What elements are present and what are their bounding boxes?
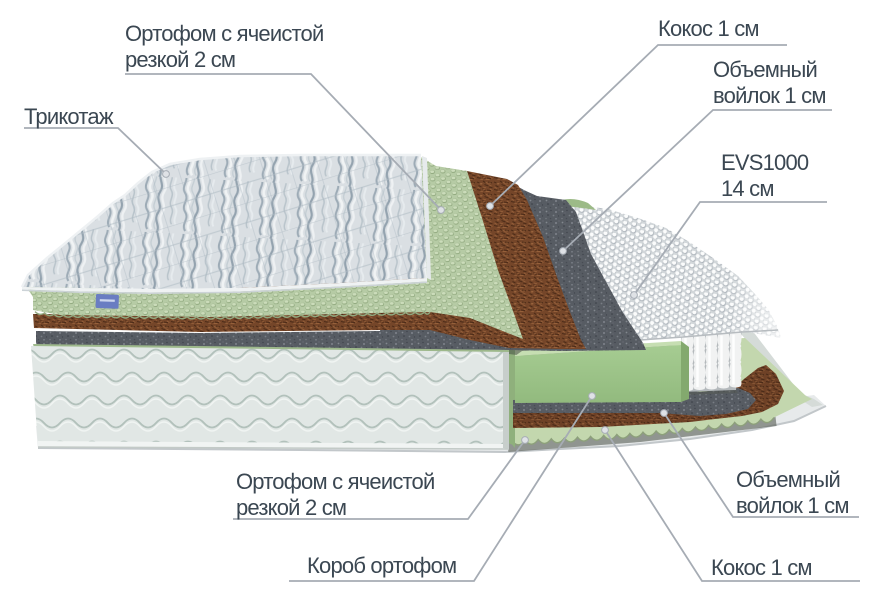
svg-text:резкой 2 см: резкой 2 см [236, 495, 346, 520]
svg-text:EVS1000: EVS1000 [721, 150, 809, 175]
svg-text:Трикотаж: Трикотаж [24, 104, 114, 129]
svg-text:Объемный: Объемный [713, 57, 817, 82]
svg-text:войлок 1 см: войлок 1 см [736, 493, 849, 518]
svg-text:войлок 1 см: войлок 1 см [713, 83, 826, 108]
svg-text:резкой 2 см: резкой 2 см [125, 47, 235, 72]
svg-text:Ортофом с ячеистой: Ортофом с ячеистой [236, 469, 434, 494]
svg-text:Короб ортофом: Короб ортофом [307, 553, 456, 578]
svg-text:Ортофом с ячеистой: Ортофом с ячеистой [125, 21, 323, 46]
svg-text:Объемный: Объемный [736, 467, 840, 492]
svg-text:Кокос 1 см: Кокос 1 см [711, 555, 812, 580]
svg-text:Кокос 1 см: Кокос 1 см [658, 16, 759, 41]
svg-text:14 см: 14 см [721, 176, 774, 201]
